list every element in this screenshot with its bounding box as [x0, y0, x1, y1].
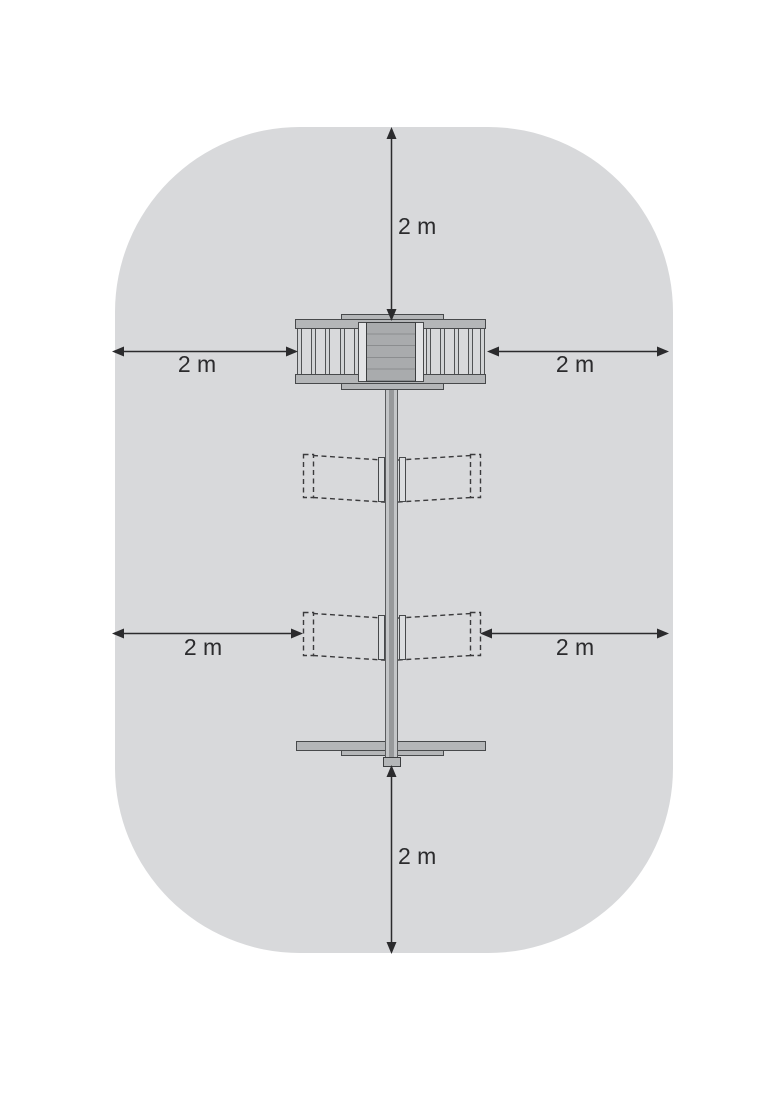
lower-beam-hub-left	[378, 615, 385, 660]
upper-beam-hub-right	[399, 457, 406, 502]
ladder-rung	[297, 326, 302, 376]
ladder-rung	[311, 326, 316, 376]
ladder-rung	[468, 326, 473, 376]
ladder-rung	[454, 326, 459, 376]
platform-post-right	[415, 322, 424, 382]
dimension-label-top: 2 m	[398, 213, 436, 239]
central-pole	[385, 381, 398, 766]
ladder-rung	[440, 326, 445, 376]
dimension-label-left-upper: 2 m	[178, 351, 216, 377]
ladder-rung	[325, 326, 330, 376]
platform-step-box	[366, 322, 416, 382]
ladder-rung	[426, 326, 431, 376]
ladder-rung	[340, 326, 345, 376]
diagram-canvas: 2 m 2 m 2 m 2 m 2 m 2 m	[0, 0, 772, 1093]
ladder-rung	[480, 326, 485, 376]
dimension-label-right-upper: 2 m	[556, 351, 594, 377]
upper-beam-hub-left	[378, 457, 385, 502]
dimension-label-bottom: 2 m	[398, 843, 436, 869]
dimension-label-right-lower: 2 m	[556, 634, 594, 660]
pole-base-cap	[383, 757, 401, 767]
dimension-label-left-lower: 2 m	[184, 634, 222, 660]
lower-beam-hub-right	[399, 615, 406, 660]
